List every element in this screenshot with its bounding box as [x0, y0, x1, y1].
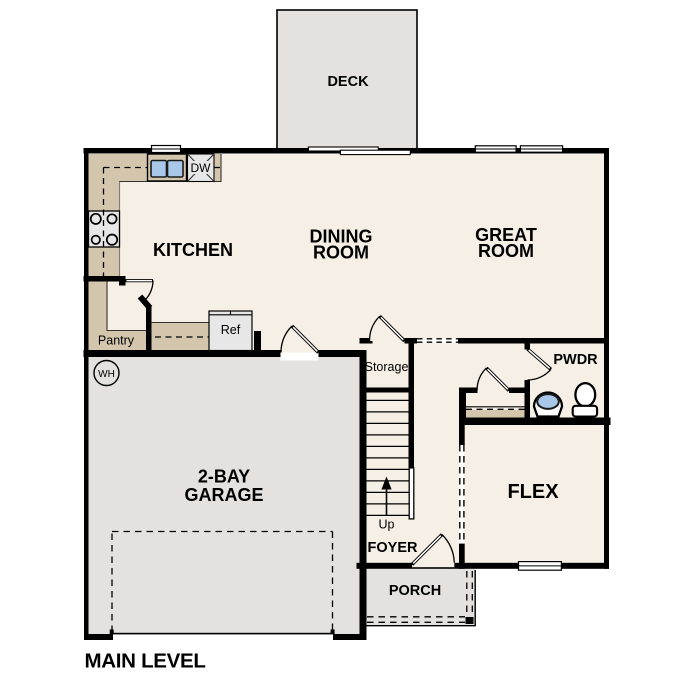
svg-text:PWDR: PWDR — [553, 352, 598, 368]
svg-text:ROOM: ROOM — [478, 241, 534, 261]
svg-text:Pantry: Pantry — [98, 334, 135, 348]
svg-text:FLEX: FLEX — [507, 481, 559, 503]
svg-text:MAIN LEVEL: MAIN LEVEL — [85, 650, 206, 673]
svg-text:Ref: Ref — [221, 323, 241, 337]
svg-text:GARAGE: GARAGE — [184, 485, 263, 505]
svg-text:DECK: DECK — [327, 74, 369, 90]
svg-text:Up: Up — [379, 518, 395, 532]
svg-text:FOYER: FOYER — [368, 540, 418, 556]
svg-text:KITCHEN: KITCHEN — [153, 240, 233, 260]
svg-text:PORCH: PORCH — [389, 583, 441, 599]
svg-text:Storage: Storage — [365, 360, 409, 374]
svg-text:WH: WH — [98, 369, 115, 380]
svg-text:2-BAY: 2-BAY — [198, 467, 250, 487]
svg-text:ROOM: ROOM — [313, 243, 369, 263]
svg-text:DW: DW — [191, 161, 212, 175]
